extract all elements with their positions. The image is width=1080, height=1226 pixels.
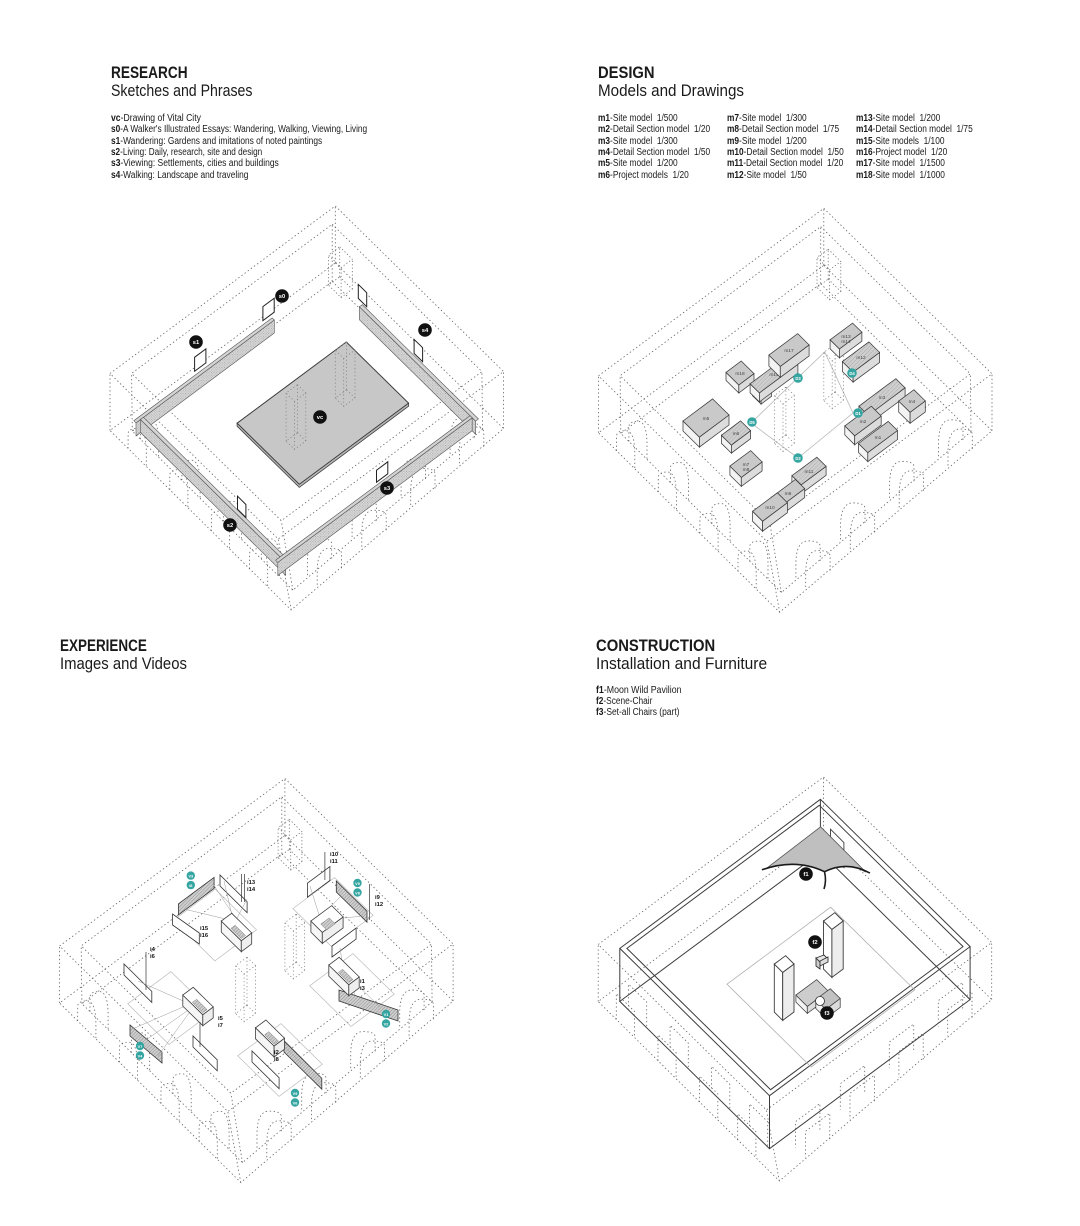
svg-text:i13: i13 [247,880,256,886]
svg-text:i5: i5 [218,1016,224,1022]
svg-text:i10: i10 [330,852,338,858]
svg-text:D4: D4 [849,371,855,376]
svg-text:i16: i16 [200,933,209,939]
svg-text:m18: m18 [735,371,745,377]
svg-text:V8: V8 [355,892,360,896]
svg-text:D3: D3 [795,376,801,381]
svg-text:s0: s0 [279,294,285,300]
svg-text:m13: m13 [841,334,851,340]
svg-text:i8: i8 [189,884,192,888]
svg-text:V6: V6 [293,1102,298,1106]
svg-text:m2: m2 [860,419,867,425]
svg-text:m17: m17 [784,348,794,354]
svg-text:i7: i7 [218,1023,223,1029]
svg-text:i8: i8 [274,1057,280,1063]
svg-text:i1: i1 [360,979,366,985]
svg-text:i15: i15 [200,926,209,932]
svg-text:m4: m4 [909,399,916,405]
svg-text:i4: i4 [150,947,156,953]
svg-text:f3: f3 [824,1011,830,1017]
svg-text:vc: vc [317,415,324,421]
svg-text:s4: s4 [422,328,429,334]
svg-text:V2: V2 [384,1023,389,1027]
svg-text:i12: i12 [375,902,383,908]
svg-text:m12: m12 [856,355,866,361]
svg-text:m1: m1 [875,435,882,441]
svg-text:s3: s3 [384,486,391,492]
svg-text:f2: f2 [812,940,817,946]
svg-text:D2: D2 [795,456,801,461]
svg-text:m5: m5 [703,416,710,422]
svg-text:V7: V7 [138,1045,143,1049]
svg-text:i6: i6 [150,954,156,960]
svg-text:i14: i14 [247,887,256,893]
svg-text:m7: m7 [743,462,750,468]
svg-text:m8: m8 [743,467,750,473]
svg-text:V1: V1 [384,1013,389,1017]
svg-text:i11: i11 [330,859,339,865]
svg-text:s1: s1 [193,340,200,346]
svg-text:i9: i9 [375,895,381,901]
svg-text:s2: s2 [227,523,233,529]
svg-text:m14: m14 [841,339,851,345]
svg-text:D5: D5 [749,420,755,425]
svg-text:m3: m3 [879,395,886,401]
svg-text:m11: m11 [805,469,814,475]
svg-text:D1: D1 [855,411,861,416]
svg-text:V9: V9 [293,1092,298,1096]
svg-text:f1: f1 [803,872,809,878]
svg-text:i2: i2 [274,1050,279,1056]
svg-text:m6: m6 [733,431,740,437]
svg-text:m10: m10 [765,505,775,511]
svg-text:V9: V9 [355,882,360,886]
svg-text:m9: m9 [785,491,792,497]
svg-text:V3: V3 [188,875,193,879]
svg-text:i3: i3 [360,986,366,992]
